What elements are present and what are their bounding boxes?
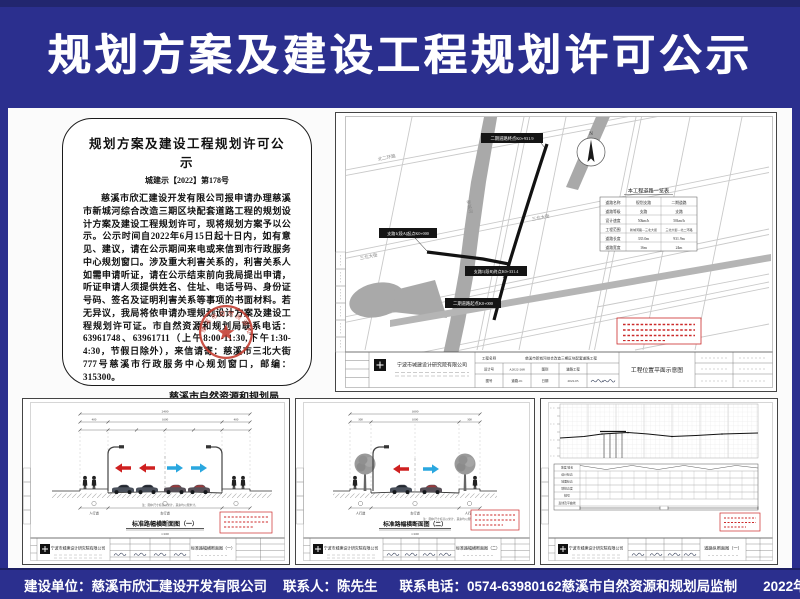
svg-text:图别: 图别 <box>542 367 549 372</box>
drawing-title: 标准路幅横断面图（二） <box>456 545 500 551</box>
svg-text:400: 400 <box>234 418 239 422</box>
svg-text:新城河路—三北大街: 新城河路—三北大街 <box>630 227 657 232</box>
approval-stamp <box>220 512 272 533</box>
cross-section-1-svg: 2400 400 1600 400 <box>22 398 290 565</box>
footer-phone: 联系电话：0574-63980162 <box>400 575 562 595</box>
svg-text:图号: 图号 <box>486 378 493 383</box>
approval-stamp <box>720 513 760 531</box>
section-note: 注：图中尺寸标高以米计，其余均以厘米计。 <box>423 517 479 521</box>
svg-text:N: N <box>589 132 593 137</box>
svg-text:填挖高度: 填挖高度 <box>561 486 573 491</box>
notice-doc-number: 城建示【2022】第178号 <box>83 175 291 186</box>
official-seal: 慈溪市自然资源和规划局 <box>197 303 255 361</box>
svg-text:二期道路终点K0+931.9: 二期道路终点K0+931.9 <box>490 135 533 142</box>
footer-contact: 联系人：陈先生 <box>283 575 378 595</box>
notice-title: 规划方案及建设工程规划许可公示 <box>83 133 291 171</box>
svg-text:工程名称: 工程名称 <box>482 356 497 361</box>
svg-text:道路-01: 道路-01 <box>511 378 523 383</box>
svg-text:1:100: 1:100 <box>161 532 169 536</box>
svg-text:1600: 1600 <box>412 410 419 414</box>
site-plan-svg: 北二环路 三北大街 三北大街 新城河 二期道路终点K0+931.9 <box>335 112 777 392</box>
page-title: 规划方案及建设工程规划许可公示 <box>0 7 800 106</box>
section-note: 注：图中尺寸标高以米计，其余均以厘米计。 <box>142 503 198 507</box>
footer-supervisor: 慈溪市自然资源和规划局监制 <box>562 575 738 595</box>
svg-text:16m: 16m <box>640 246 647 250</box>
cross-section-drawing-1: 2400 400 1600 400 <box>22 398 290 565</box>
svg-text:直线及平曲线: 直线及平曲线 <box>558 500 575 505</box>
svg-text:规划支路: 规划支路 <box>636 200 651 205</box>
approval-stamp <box>617 318 701 344</box>
footer-date: 2022年6月14日 <box>763 575 800 595</box>
site-plan-drawing: 北二环路 三北大街 三北大街 新城河 二期道路终点K0+931.9 <box>335 112 777 392</box>
svg-text:桩号: 桩号 <box>564 493 570 498</box>
profile-grid <box>550 404 758 458</box>
company-name: 宁波市城建设计研究院有限公司 <box>569 546 624 551</box>
notice-board: 规划方案及建设工程规划许可公示 规划方案及建设工程规划许可公示 城建示【2022… <box>0 0 800 599</box>
profile-svg: 坡度/坡长 设计标高 地面标高 填挖高度 桩号 直线及平曲线 <box>540 398 778 565</box>
svg-text:车行道: 车行道 <box>160 511 170 516</box>
svg-text:设计速度: 设计速度 <box>605 218 620 223</box>
svg-text:道路等级: 道路等级 <box>605 209 620 214</box>
footer-bar: 建设单位：慈溪市欣汇建设开发有限公司 联系人：陈先生 联系电话：0574-639… <box>0 568 800 599</box>
svg-text:1:100: 1:100 <box>411 532 419 536</box>
svg-text:24m: 24m <box>676 246 683 250</box>
svg-text:1600: 1600 <box>162 418 169 422</box>
svg-text:50km/h: 50km/h <box>638 219 650 223</box>
svg-text:1000: 1000 <box>412 418 419 422</box>
profile-table: 坡度/坡长 设计标高 地面标高 填挖高度 桩号 直线及平曲线 <box>554 464 758 510</box>
content-panel: 规划方案及建设工程规划许可公示 城建示【2022】第178号 慈溪市欣汇建设开发… <box>8 108 792 568</box>
company-name: 宁波市城建设计研究院有限公司 <box>51 546 106 551</box>
footer-builder: 建设单位：慈溪市欣汇建设开发有限公司 <box>24 575 267 595</box>
svg-text:50km/h: 50km/h <box>673 219 685 223</box>
svg-text:支路: 支路 <box>675 209 683 214</box>
svg-text:400: 400 <box>92 418 97 422</box>
svg-text:二期道路: 二期道路 <box>671 200 686 205</box>
cross-section-2-svg: 1600 300 1000 300 <box>295 398 535 565</box>
svg-text:标准路幅横断面图（二）: 标准路幅横断面图（二） <box>382 520 447 528</box>
svg-text:2400: 2400 <box>162 410 169 414</box>
svg-text:工程范围: 工程范围 <box>605 227 620 232</box>
svg-text:支路1(段A)起点K0+000: 支路1(段A)起点K0+000 <box>387 230 429 236</box>
svg-text:道路工程: 道路工程 <box>566 367 580 372</box>
drawing-title: 道路纵断面图（一） <box>704 545 742 552</box>
project-name: 慈溪市新城河综合改造三期区块配套道路工程 <box>525 356 597 361</box>
svg-text:车行道: 车行道 <box>410 511 420 516</box>
drawing-title: 工程位置平面示意图 <box>631 366 683 374</box>
svg-text:300: 300 <box>467 418 472 422</box>
svg-text:二期道路起点K0+000: 二期道路起点K0+000 <box>453 300 493 307</box>
company-name: 宁波市城建设计研究院有限公司 <box>324 546 379 551</box>
svg-text:300: 300 <box>358 418 363 422</box>
svg-text:A2022-268: A2022-268 <box>509 368 525 372</box>
cross-section-drawing-2: 1600 300 1000 300 <box>295 398 535 565</box>
svg-text:标准路幅横断面图（一）: 标准路幅横断面图（一） <box>131 520 198 528</box>
svg-text:335.0m: 335.0m <box>638 237 650 241</box>
svg-text:支路1(段B)终点K0+331.4: 支路1(段B)终点K0+331.4 <box>474 268 519 274</box>
svg-text:本工程道路一览表: 本工程道路一览表 <box>628 187 670 195</box>
notice-document: 规划方案及建设工程规划许可公示 城建示【2022】第178号 慈溪市欣汇建设开发… <box>62 118 312 386</box>
svg-text:三北大街—北二环路: 三北大街—北二环路 <box>665 227 692 232</box>
svg-text:设计号: 设计号 <box>484 367 495 372</box>
drawing-title: 标准路幅横断面图（一） <box>191 545 235 551</box>
svg-text:地面标高: 地面标高 <box>561 479 573 484</box>
profile-drawing: 坡度/坡长 设计标高 地面标高 填挖高度 桩号 直线及平曲线 <box>540 398 778 565</box>
svg-text:道路名称: 道路名称 <box>605 200 620 205</box>
svg-text:支路: 支路 <box>640 209 648 214</box>
company-name: 宁波市城建设计研究院有限公司 <box>397 362 467 369</box>
notice-body: 慈溪市欣汇建设开发有限公司报申请办理慈溪市新城河综合改造三期区块配套道路工程的规… <box>83 192 291 383</box>
svg-text:设计标高: 设计标高 <box>561 472 573 477</box>
svg-text:931.9m: 931.9m <box>673 237 685 241</box>
svg-text:坡度/坡长: 坡度/坡长 <box>561 465 573 470</box>
svg-text:人行道: 人行道 <box>356 511 366 516</box>
svg-text:道路长度: 道路长度 <box>605 236 620 241</box>
approval-stamp <box>471 510 519 530</box>
svg-text:2022.05: 2022.05 <box>567 379 578 383</box>
svg-text:人行道: 人行道 <box>89 511 99 516</box>
svg-text:日期: 日期 <box>542 378 549 383</box>
svg-text:道路宽度: 道路宽度 <box>605 245 620 250</box>
